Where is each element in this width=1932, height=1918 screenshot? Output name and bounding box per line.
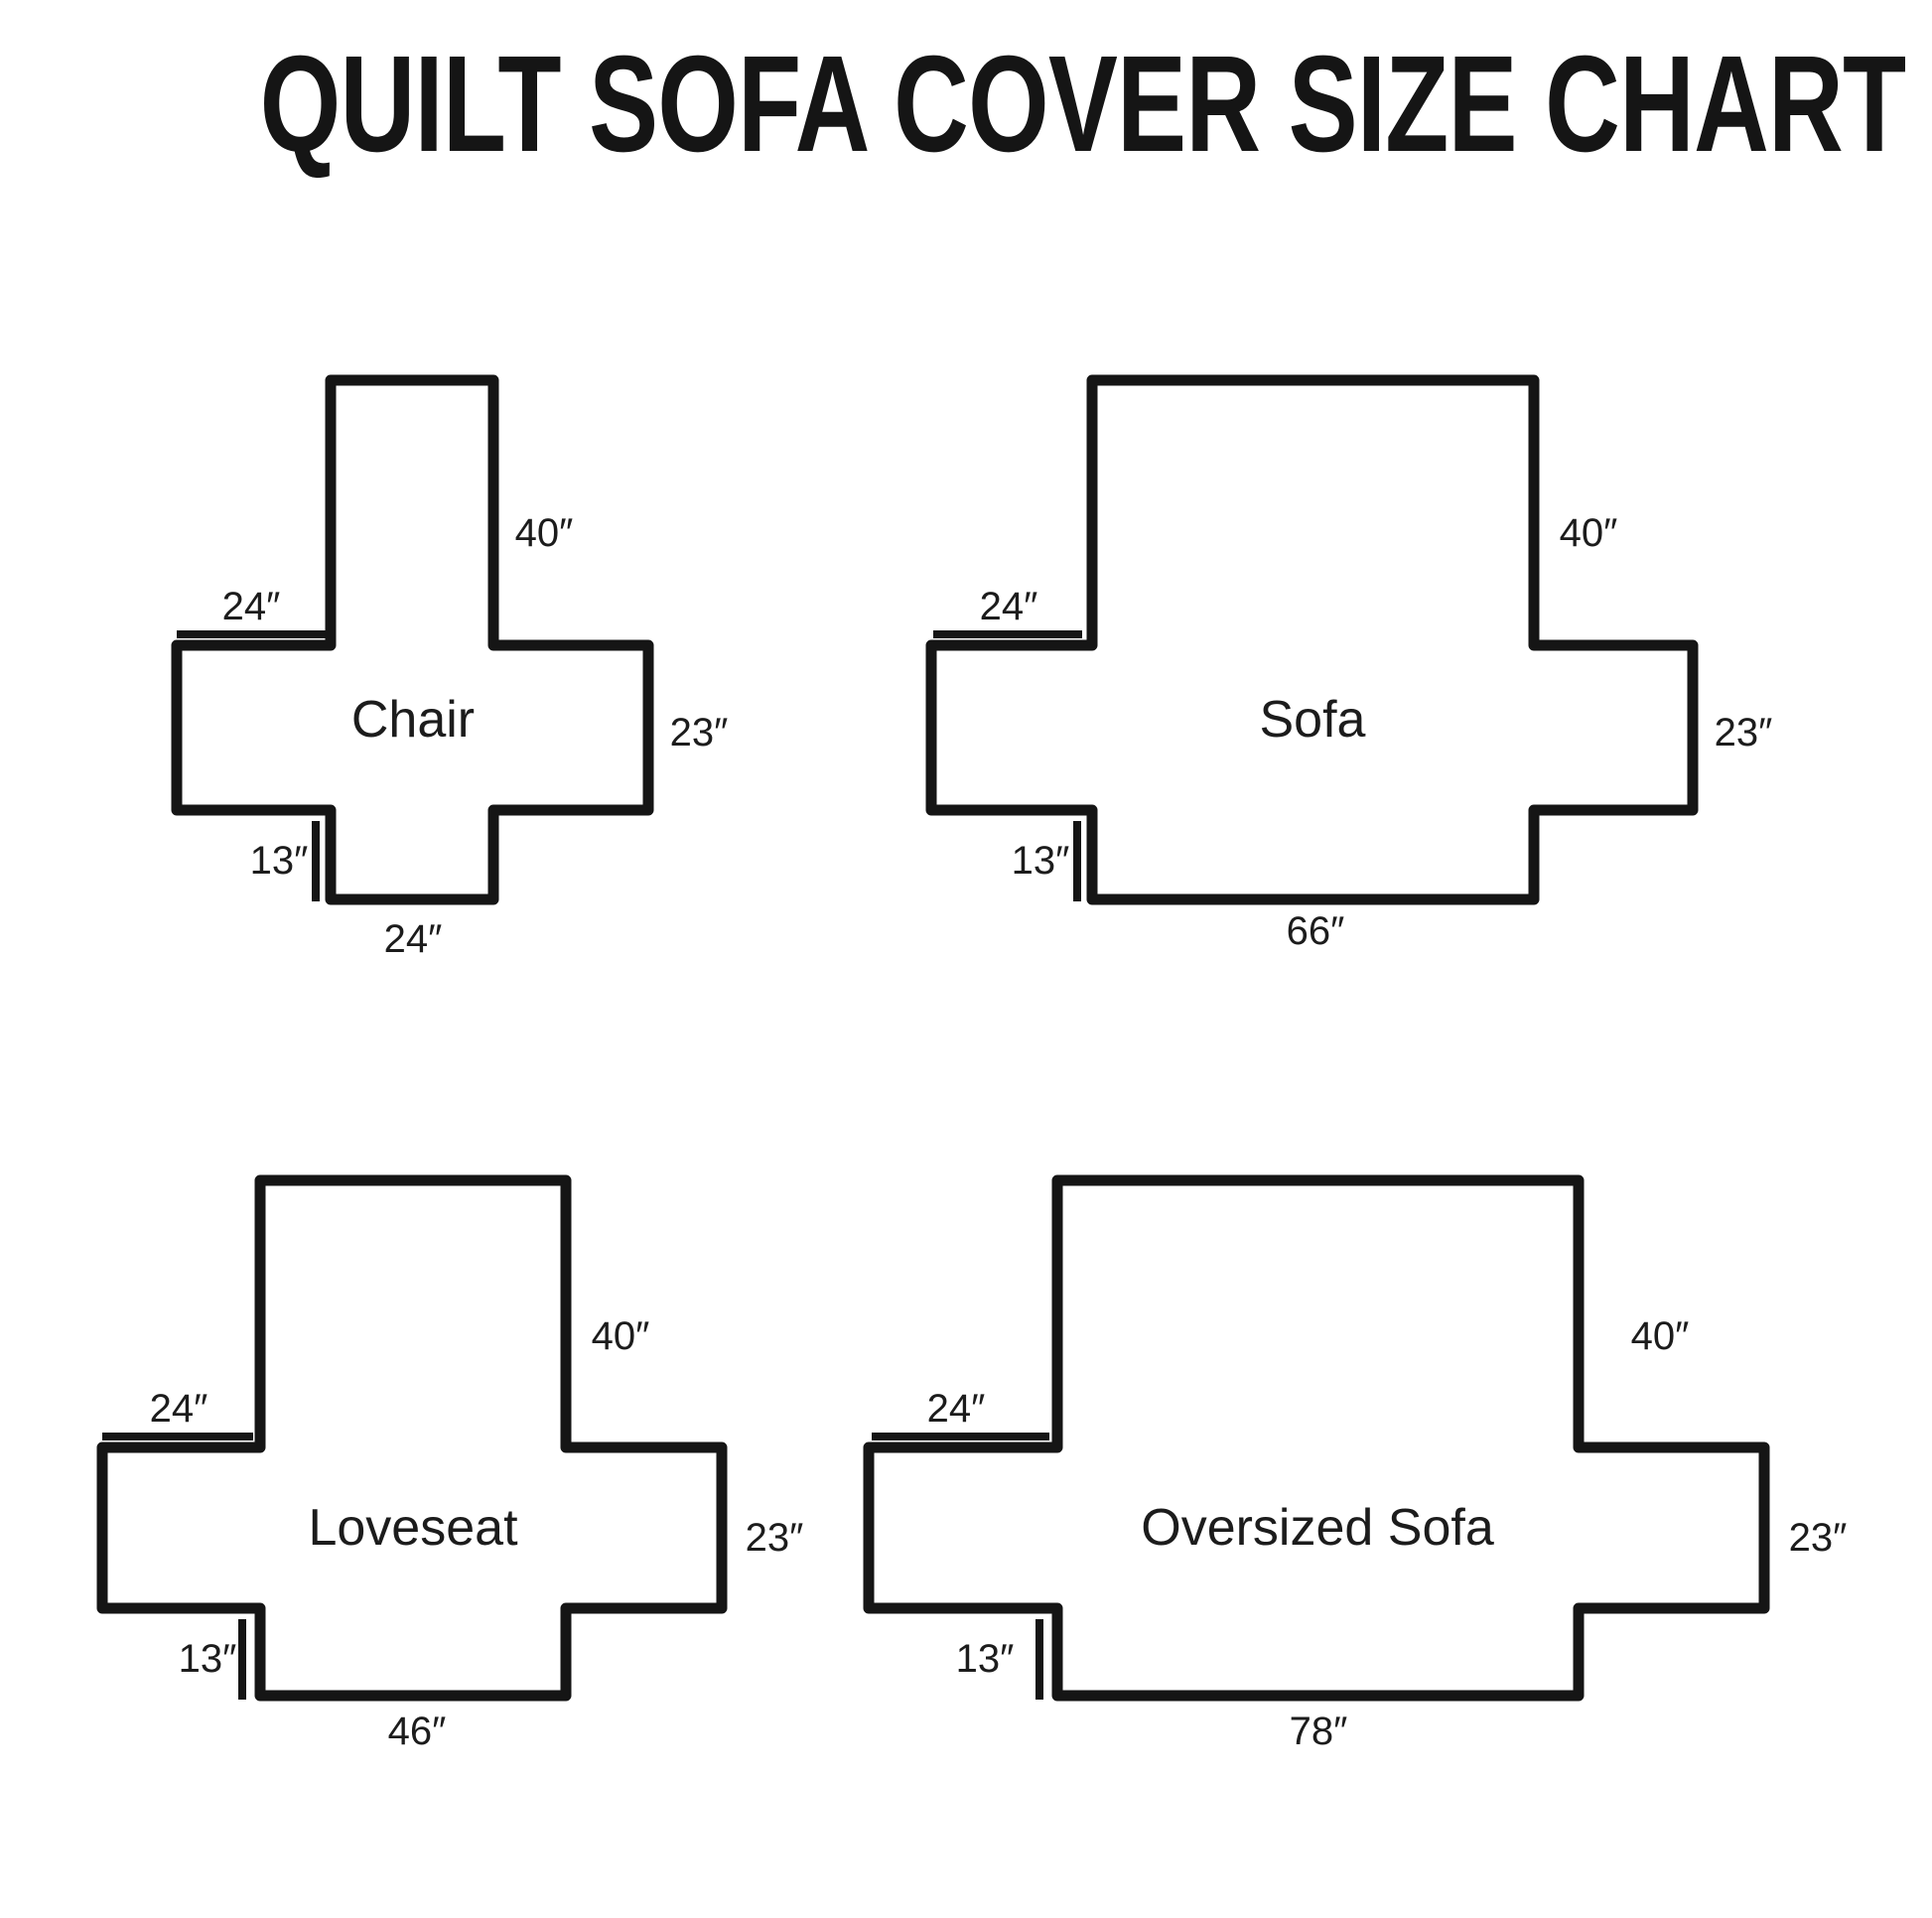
- loveseat-back-height-label: 40″: [592, 1314, 650, 1358]
- chair-name-label: Chair: [351, 691, 475, 749]
- sofa-side-height-label: 23″: [1715, 711, 1773, 754]
- chair-front-drop-label: 13″: [250, 839, 309, 883]
- oversized-sofa-bottom-width-label: 78″: [1290, 1710, 1348, 1753]
- sofa-cover-outline: [931, 380, 1693, 899]
- loveseat-arm-width-label: 24″: [150, 1387, 208, 1431]
- sofa-back-height-label: 40″: [1560, 511, 1618, 555]
- chair-bottom-width-label: 24″: [384, 917, 443, 961]
- chair-arm-width-label: 24″: [222, 585, 281, 628]
- size-chart-page: QUILT SOFA COVER SIZE CHART 40″ 24″ Chai…: [0, 0, 1932, 1918]
- oversized-sofa-arm-width-label: 24″: [927, 1387, 986, 1431]
- oversized-sofa-name-label: Oversized Sofa: [1141, 1499, 1494, 1557]
- chair-cover-outline: [177, 380, 648, 899]
- oversized-sofa-back-height-label: 40″: [1631, 1314, 1690, 1358]
- loveseat-name-label: Loveseat: [308, 1499, 518, 1557]
- loveseat-side-height-label: 23″: [746, 1516, 804, 1560]
- sofa-arm-width-label: 24″: [980, 585, 1038, 628]
- loveseat-bottom-width-label: 46″: [388, 1710, 447, 1753]
- oversized-sofa-side-height-label: 23″: [1789, 1516, 1848, 1560]
- sofa-front-drop-label: 13″: [1012, 839, 1070, 883]
- loveseat-front-drop-label: 13″: [179, 1637, 237, 1681]
- size-diagrams: 40″ 24″ Chair 23″ 13″ 24″ 40″ 24″ Sofa 2…: [0, 0, 1932, 1918]
- chair-diagram: 40″ 24″ Chair 23″ 13″ 24″: [177, 380, 728, 961]
- sofa-name-label: Sofa: [1260, 691, 1366, 749]
- loveseat-diagram: 40″ 24″ Loveseat 23″ 13″ 46″: [102, 1180, 803, 1753]
- sofa-bottom-width-label: 66″: [1287, 909, 1345, 953]
- sofa-diagram: 40″ 24″ Sofa 23″ 13″ 66″: [931, 380, 1772, 953]
- chair-back-height-label: 40″: [515, 511, 574, 555]
- oversized-sofa-diagram: 40″ 24″ Oversized Sofa 23″ 13″ 78″: [869, 1180, 1847, 1753]
- chair-side-height-label: 23″: [670, 711, 729, 754]
- oversized-sofa-front-drop-label: 13″: [956, 1637, 1015, 1681]
